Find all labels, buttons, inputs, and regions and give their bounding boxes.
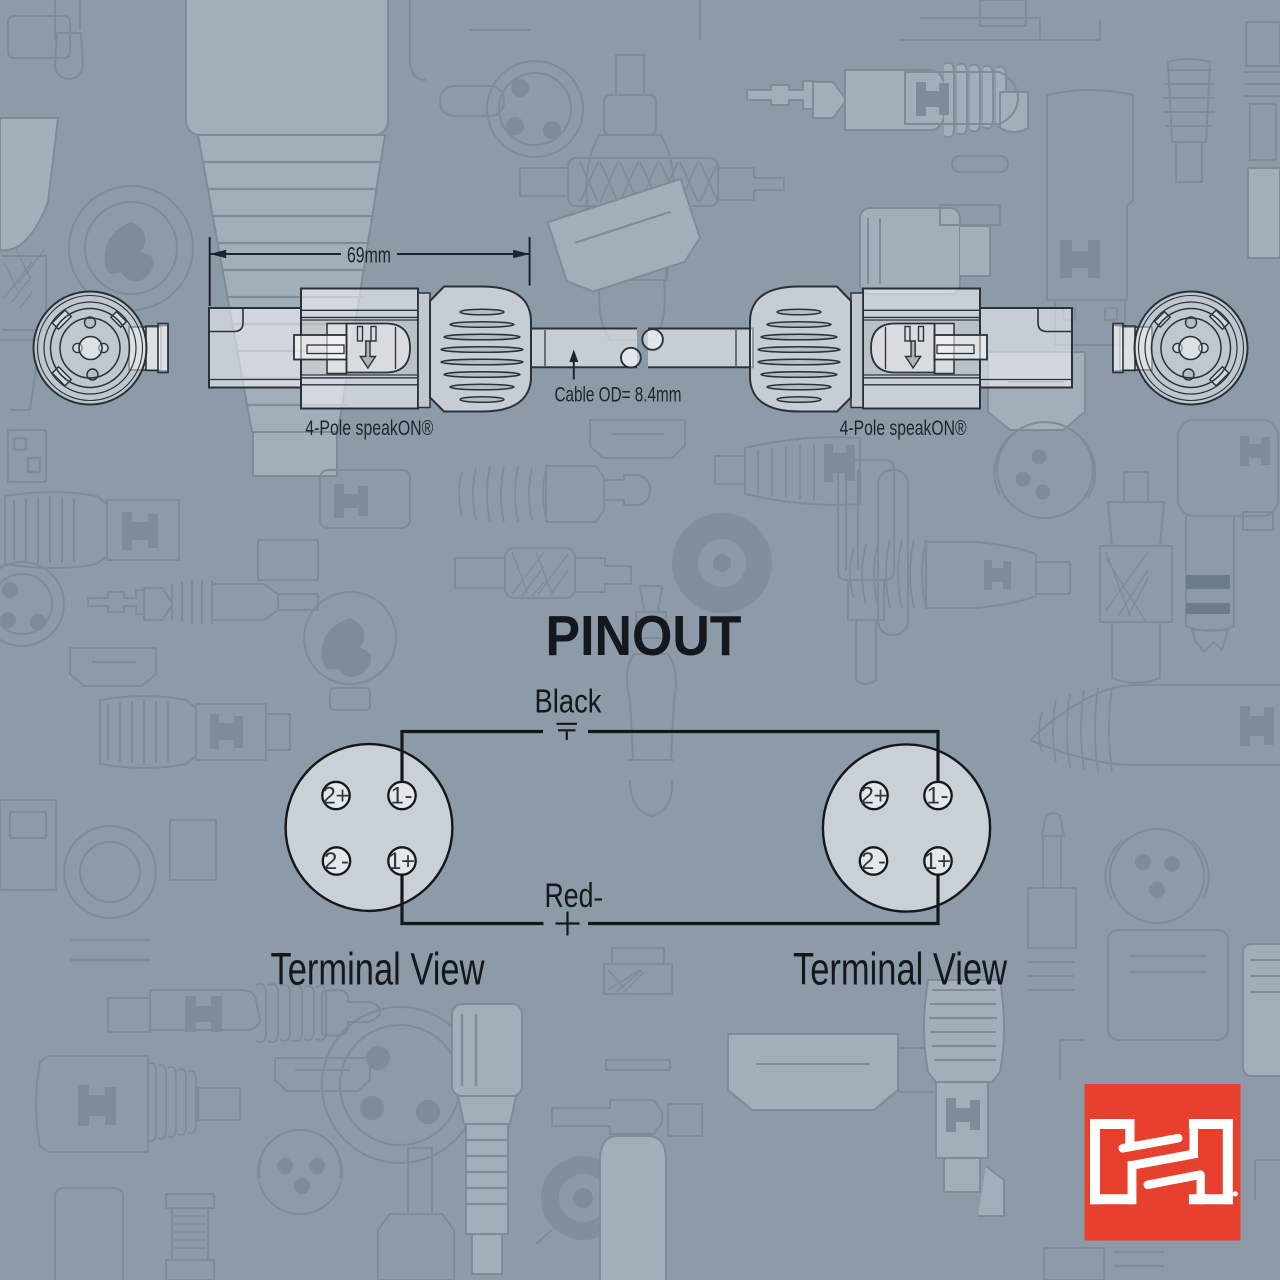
svg-text:1-: 1- [391,783,413,810]
svg-text:4-Pole speakON®: 4-Pole speakON® [840,417,967,440]
svg-text:4-Pole speakON®: 4-Pole speakON® [305,417,433,440]
svg-text:Terminal View: Terminal View [793,944,1007,995]
svg-text:2+: 2+ [861,783,888,810]
svg-text:1-: 1- [927,783,949,810]
svg-text:2-: 2- [861,848,886,875]
svg-text:2+: 2+ [323,783,350,810]
svg-text:69mm: 69mm [347,243,391,268]
svg-text:Terminal View: Terminal View [271,944,485,995]
svg-text:PINOUT: PINOUT [546,604,742,668]
svg-text:2-: 2- [324,848,349,875]
svg-text:Black: Black [535,683,602,720]
svg-text:Cable OD= 8.4mm: Cable OD= 8.4mm [555,384,682,407]
svg-text:Red: Red [545,877,594,915]
svg-text:1+: 1+ [924,848,951,875]
svg-text:1+: 1+ [388,848,415,875]
